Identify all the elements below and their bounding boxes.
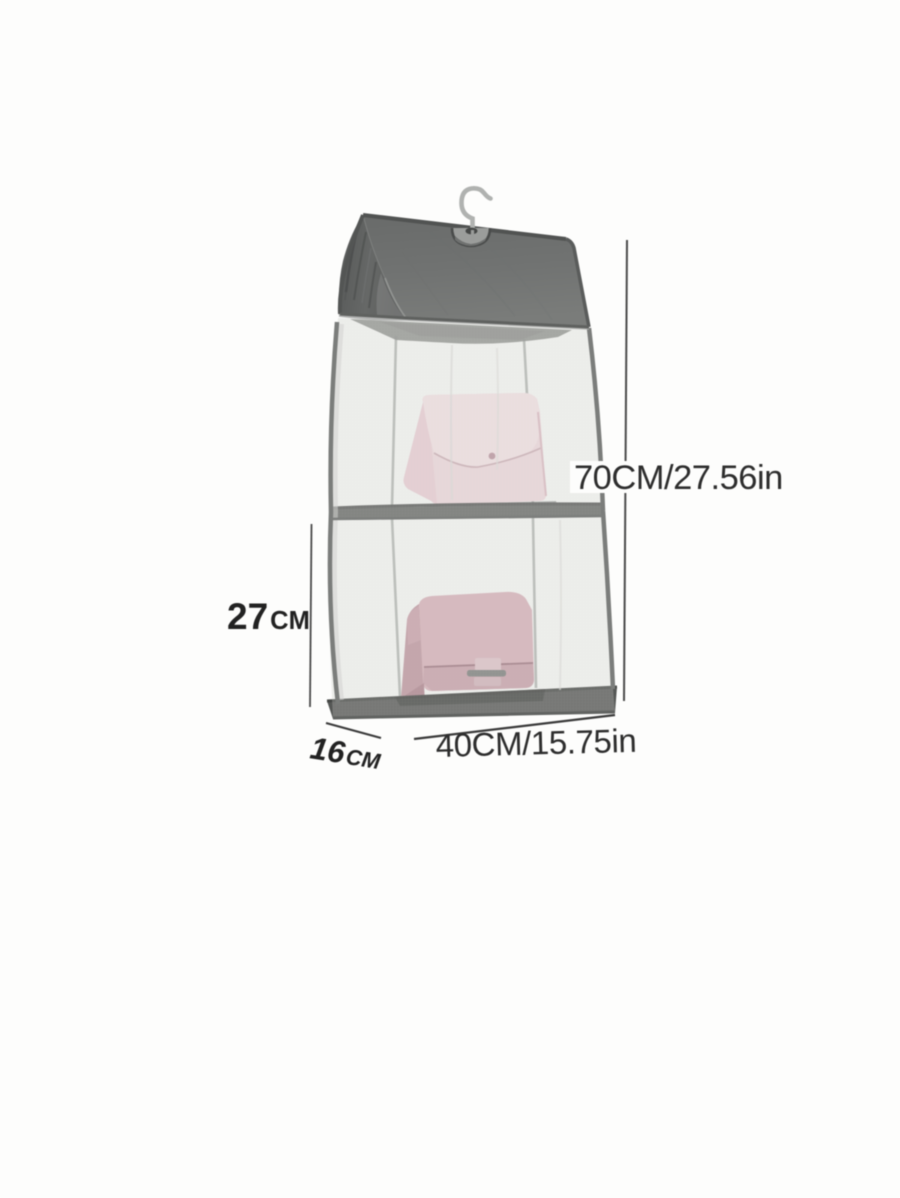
svg-text:70CM/27.56in: 70CM/27.56in: [574, 459, 783, 497]
svg-text:40CM/15.75in: 40CM/15.75in: [435, 722, 637, 764]
